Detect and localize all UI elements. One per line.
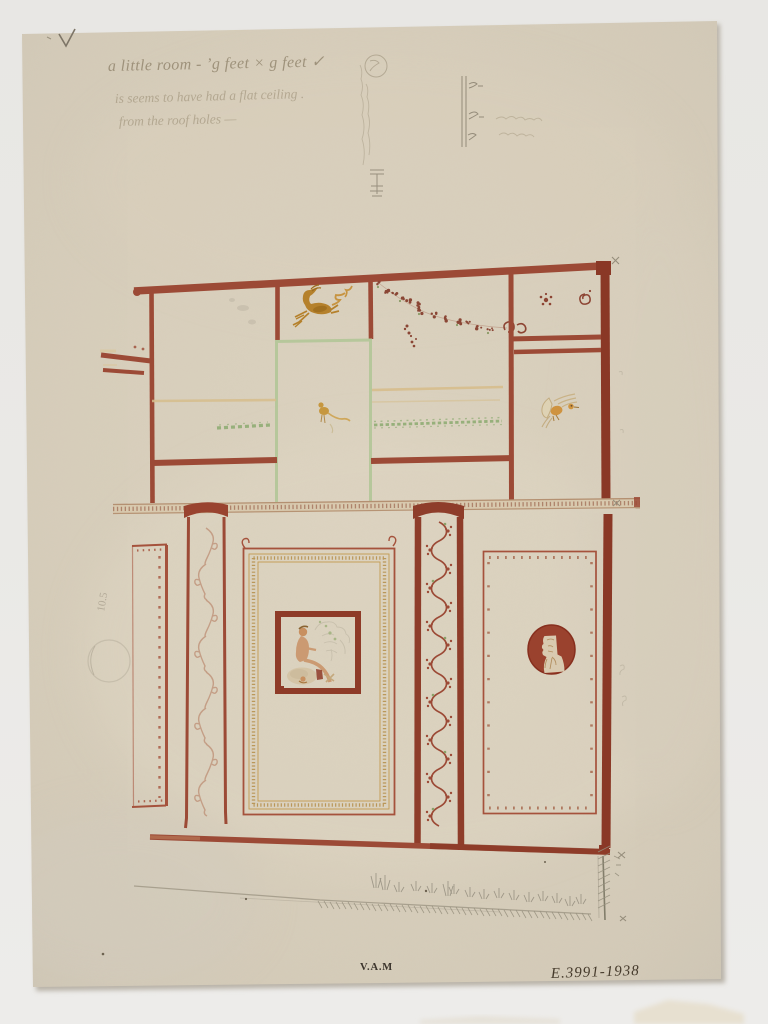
- svg-text:from the roof holes —: from the roof holes —: [119, 111, 238, 129]
- svg-text:E.3991-1938: E.3991-1938: [550, 963, 640, 982]
- svg-text:V.A.M: V.A.M: [360, 962, 393, 973]
